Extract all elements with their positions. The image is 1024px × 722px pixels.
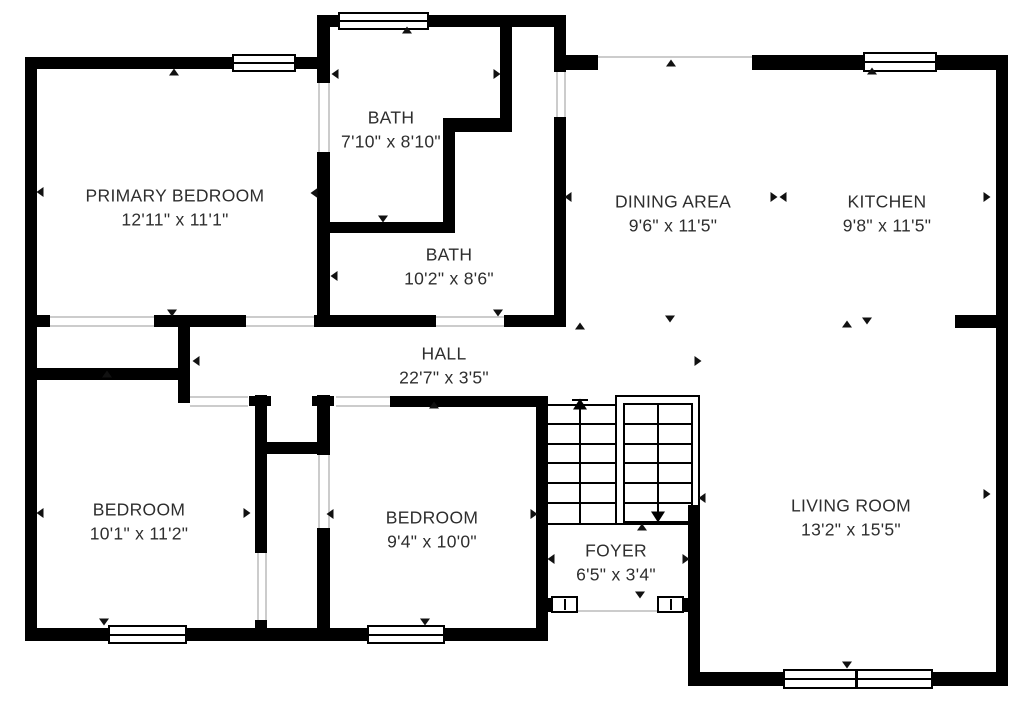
room-label-hall: HALL bbox=[422, 345, 467, 363]
wall-segment bbox=[554, 117, 566, 327]
wall-segment bbox=[255, 395, 267, 553]
stair-up-arrow-head bbox=[573, 399, 587, 410]
right-marker bbox=[494, 69, 501, 79]
right-marker bbox=[531, 509, 538, 519]
window-pane-line bbox=[785, 678, 855, 680]
up-marker bbox=[637, 524, 647, 531]
wall-segment bbox=[504, 315, 566, 327]
stair-tread bbox=[548, 462, 615, 464]
wall-segment bbox=[317, 152, 330, 327]
left-marker bbox=[193, 356, 200, 366]
opening-line bbox=[50, 316, 154, 318]
wall-segment bbox=[443, 118, 455, 233]
opening-line bbox=[578, 610, 657, 612]
up-marker bbox=[169, 69, 179, 76]
opening-line bbox=[265, 553, 267, 620]
wall-segment bbox=[317, 15, 330, 83]
wall-segment bbox=[255, 620, 267, 641]
wall-segment bbox=[688, 505, 700, 686]
wall-segment bbox=[25, 628, 548, 641]
right-marker bbox=[771, 192, 778, 202]
room-dims-bedroom-middle: 9'4" x 10'0" bbox=[387, 533, 477, 551]
down-marker bbox=[493, 310, 503, 317]
window-pane-line bbox=[369, 634, 443, 636]
wall-segment bbox=[566, 55, 598, 70]
floor-plan: PRIMARY BEDROOM12'11" x 11'1"BATH7'10" x… bbox=[0, 0, 1024, 722]
stair-up-arrow-line bbox=[579, 408, 581, 523]
room-dims-foyer: 6'5" x 3'4" bbox=[576, 566, 656, 584]
left-marker bbox=[548, 554, 555, 564]
right-marker bbox=[695, 356, 702, 366]
window bbox=[108, 625, 187, 644]
room-label-foyer: FOYER bbox=[585, 542, 647, 560]
left-marker bbox=[37, 187, 44, 197]
stair-tread bbox=[548, 423, 615, 425]
opening-line bbox=[328, 83, 330, 152]
down-marker bbox=[378, 216, 388, 223]
stair-tread bbox=[548, 502, 615, 504]
wall-segment bbox=[178, 315, 190, 403]
left-marker bbox=[332, 69, 339, 79]
room-dims-primary-bedroom: 12'11" x 11'1" bbox=[121, 211, 228, 229]
left-marker bbox=[327, 509, 334, 519]
window bbox=[232, 54, 296, 72]
wall-segment bbox=[317, 528, 330, 641]
down-marker bbox=[635, 592, 645, 599]
up-marker bbox=[575, 323, 585, 330]
up-marker bbox=[867, 68, 877, 75]
room-label-kitchen: KITCHEN bbox=[848, 193, 927, 211]
opening-line bbox=[318, 455, 320, 528]
opening-line bbox=[257, 553, 259, 620]
down-marker bbox=[842, 662, 852, 669]
window-pane-line bbox=[564, 599, 566, 610]
window-pane-line bbox=[340, 20, 427, 22]
left-marker bbox=[37, 508, 44, 518]
window bbox=[856, 669, 933, 689]
window bbox=[551, 596, 578, 613]
up-marker bbox=[842, 321, 852, 328]
room-dims-kitchen: 9'8" x 11'5" bbox=[843, 217, 932, 235]
left-marker bbox=[565, 192, 572, 202]
wall-segment bbox=[263, 442, 322, 454]
wall-segment bbox=[536, 396, 548, 641]
room-label-bath-hall: BATH bbox=[426, 246, 473, 264]
up-marker bbox=[429, 402, 439, 409]
right-marker bbox=[984, 192, 991, 202]
room-label-dining-area: DINING AREA bbox=[615, 193, 731, 211]
opening-line bbox=[318, 83, 320, 152]
window-pane-line bbox=[865, 61, 935, 63]
left-marker bbox=[311, 188, 318, 198]
up-marker bbox=[666, 60, 676, 67]
window-pane-line bbox=[670, 599, 672, 610]
window-pane-line bbox=[858, 678, 931, 680]
stair-tread bbox=[548, 523, 615, 525]
wall-segment bbox=[500, 15, 512, 118]
window bbox=[367, 625, 445, 644]
down-marker bbox=[420, 619, 430, 626]
room-dims-bedroom-left: 10'1" x 11'2" bbox=[90, 525, 189, 543]
down-marker bbox=[862, 318, 872, 325]
wall-segment bbox=[955, 315, 1008, 328]
opening-line bbox=[246, 316, 314, 318]
room-dims-hall: 22'7" x 3'5" bbox=[399, 369, 489, 387]
opening-line bbox=[598, 56, 752, 58]
down-marker bbox=[167, 310, 177, 317]
right-marker bbox=[984, 489, 991, 499]
up-marker bbox=[102, 371, 112, 378]
right-marker bbox=[244, 508, 251, 518]
wall-segment bbox=[554, 15, 566, 72]
wall-segment bbox=[25, 57, 37, 641]
room-label-living-room: LIVING ROOM bbox=[791, 497, 911, 515]
left-marker bbox=[780, 192, 787, 202]
opening-line bbox=[246, 325, 314, 327]
wall-segment bbox=[25, 315, 50, 327]
wall-segment bbox=[317, 222, 455, 233]
wall-segment bbox=[390, 396, 548, 407]
stair-down-arrow-head bbox=[651, 512, 665, 523]
opening-line bbox=[50, 325, 154, 327]
down-marker bbox=[99, 619, 109, 626]
opening-line bbox=[436, 325, 504, 327]
room-dims-bath-hall: 10'2" x 8'6" bbox=[404, 270, 494, 288]
window-pane-line bbox=[110, 634, 185, 636]
down-marker bbox=[665, 316, 675, 323]
stair-tread bbox=[548, 482, 615, 484]
room-dims-living-room: 13'2" x 15'5" bbox=[801, 521, 901, 539]
room-label-bedroom-left: BEDROOM bbox=[93, 501, 186, 519]
opening-line bbox=[564, 72, 566, 117]
room-label-primary-bedroom: PRIMARY BEDROOM bbox=[86, 187, 265, 205]
opening-line bbox=[336, 396, 390, 398]
stair-tread bbox=[548, 443, 615, 445]
room-dims-dining-area: 9'6" x 11'5" bbox=[629, 217, 718, 235]
room-dims-bath-ensuite: 7'10" x 8'10" bbox=[341, 133, 441, 151]
opening-line bbox=[556, 72, 558, 117]
window bbox=[783, 669, 857, 689]
window bbox=[338, 12, 429, 30]
window-pane-line bbox=[234, 62, 294, 64]
room-label-bath-ensuite: BATH bbox=[368, 109, 415, 127]
stair-down-arrow-line bbox=[657, 405, 659, 512]
left-marker bbox=[699, 493, 706, 503]
room-label-bedroom-middle: BEDROOM bbox=[386, 509, 479, 527]
opening-line bbox=[336, 405, 390, 407]
opening-line bbox=[190, 396, 248, 398]
wall-segment bbox=[154, 315, 246, 327]
wall-segment bbox=[314, 315, 436, 327]
window bbox=[657, 596, 684, 613]
wall-segment bbox=[996, 55, 1008, 686]
up-marker bbox=[402, 27, 412, 34]
right-marker bbox=[683, 554, 690, 564]
left-marker bbox=[331, 271, 338, 281]
opening-line bbox=[190, 405, 248, 407]
